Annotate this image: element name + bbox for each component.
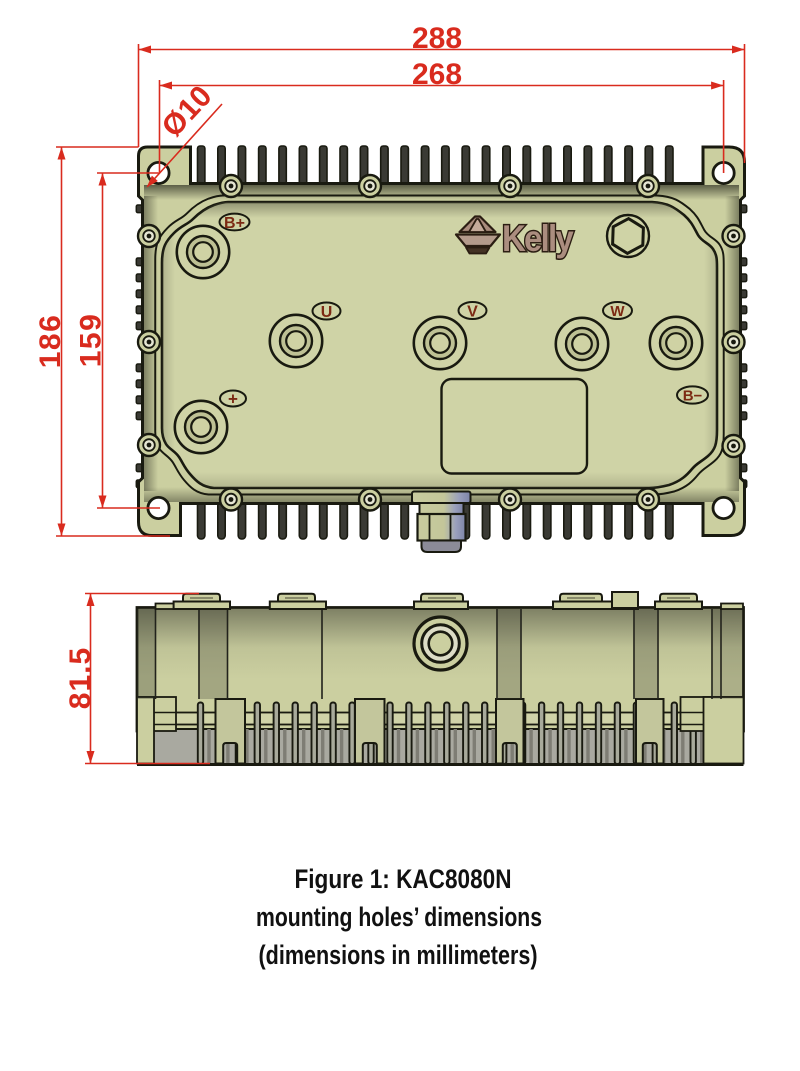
svg-text:Kelly: Kelly: [502, 218, 574, 259]
svg-text:Figure 1: KAC8080N: Figure 1: KAC8080N: [295, 864, 512, 894]
svg-text:mounting holes’ dimensions: mounting holes’ dimensions: [256, 902, 542, 932]
svg-text:288: 288: [412, 22, 462, 55]
svg-text:B−: B−: [683, 387, 703, 404]
svg-text:186: 186: [34, 314, 67, 369]
svg-text:B+: B+: [224, 215, 245, 232]
svg-text:V: V: [467, 303, 478, 320]
svg-text:U: U: [321, 304, 333, 321]
svg-text:W: W: [610, 303, 625, 320]
svg-text:159: 159: [75, 313, 108, 368]
svg-text:81.5: 81.5: [64, 647, 97, 709]
svg-text:+: +: [228, 390, 238, 409]
svg-text:(dimensions in millimeters): (dimensions in millimeters): [259, 940, 538, 970]
svg-text:268: 268: [412, 58, 462, 91]
